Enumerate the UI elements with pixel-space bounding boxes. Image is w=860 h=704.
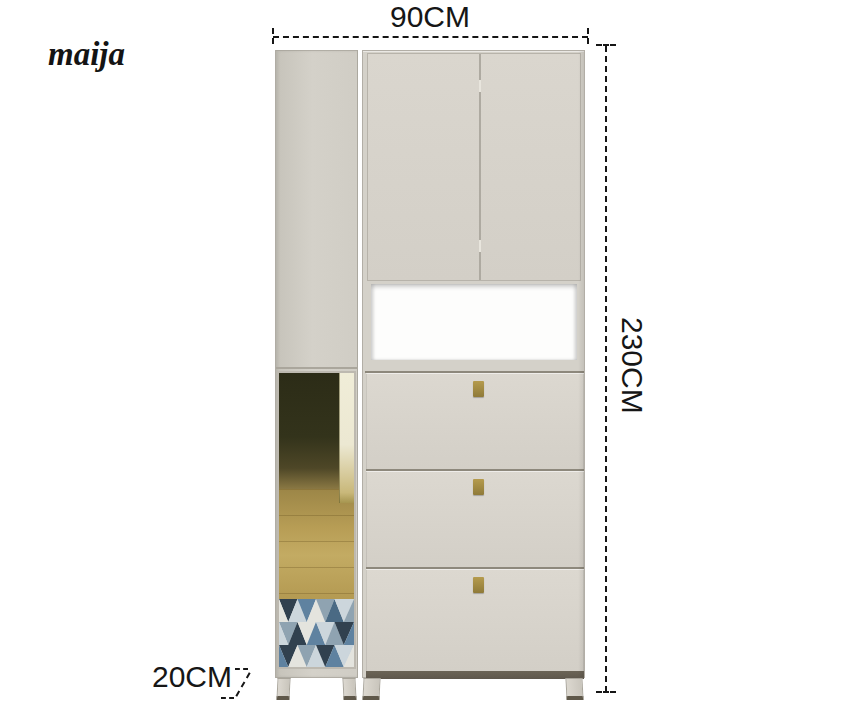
product-dimension-image: maija 90CM 230CM 20CM <box>0 0 860 704</box>
brand-logo: maija <box>48 38 125 71</box>
door-gap-highlight <box>479 80 481 92</box>
door-gap-highlight <box>479 240 481 252</box>
mirror-reflection-doorframe <box>339 373 354 503</box>
open-shelf-niche <box>371 284 577 360</box>
dimension-tick <box>587 28 589 44</box>
mirror-side-cabinet <box>275 50 358 678</box>
cabinet-side-edge <box>578 51 584 677</box>
drawer <box>366 373 584 469</box>
mirror-reflection-rug <box>279 599 354 667</box>
upper-cabinet-doors <box>367 53 581 281</box>
dimension-tick <box>272 28 274 44</box>
dimension-tick <box>221 697 234 699</box>
recessed-base-rail <box>366 671 584 679</box>
cabinet-leg <box>362 678 380 700</box>
drawer-gold-handle <box>473 577 484 593</box>
panel-seam <box>276 367 357 369</box>
width-dimension-line <box>273 36 588 38</box>
cabinet-leg <box>342 678 356 700</box>
dimension-tick <box>235 668 248 670</box>
depth-dimension-label: 20CM <box>152 662 232 692</box>
depth-dimension-line <box>235 672 250 696</box>
cabinet-leg <box>565 678 583 700</box>
dimension-tick <box>596 691 616 693</box>
drawer-gold-handle <box>473 479 484 495</box>
drawer-gold-handle <box>473 381 484 397</box>
dimension-tick <box>596 44 616 46</box>
drawer <box>366 471 584 567</box>
cabinet-leg <box>276 678 290 700</box>
height-dimension-label: 230CM <box>617 317 647 413</box>
shoe-drawer-stack <box>366 373 584 679</box>
full-length-mirror <box>277 371 356 669</box>
width-dimension-label: 90CM <box>368 2 492 32</box>
mirror-reflection-wood-floor <box>279 489 354 599</box>
drawer <box>366 569 584 671</box>
main-cabinet-unit <box>362 50 585 678</box>
height-dimension-line <box>605 46 607 692</box>
